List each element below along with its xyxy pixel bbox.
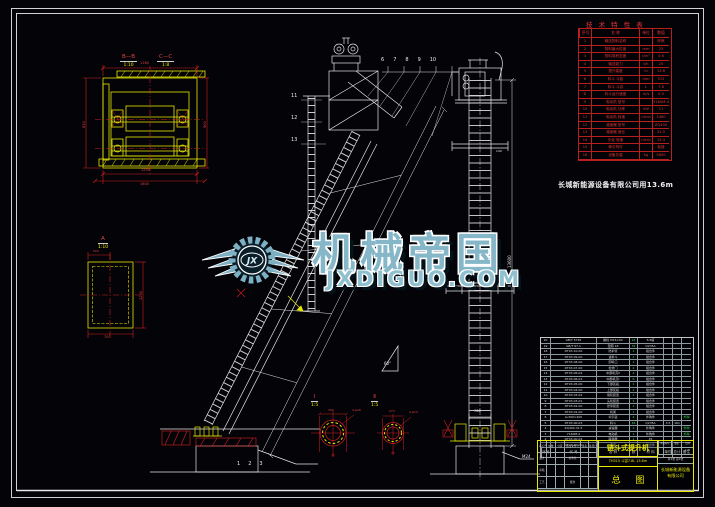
tech-row-name: 料斗 斗容 xyxy=(591,84,639,92)
stage-value xyxy=(671,448,681,455)
tech-row-name: 牵引构件 xyxy=(591,144,639,152)
dim-d2-width: 273 xyxy=(389,410,395,413)
callout-number: 13 xyxy=(291,137,297,143)
tech-row: 5 提升高度 m 13.6 xyxy=(579,68,671,76)
tech-row-name: 输送能力 xyxy=(591,61,639,69)
tech-row-unit: kg xyxy=(639,152,652,160)
tech-row-name: 物料最大粒度 xyxy=(591,46,639,54)
revision-cell: 年月日 xyxy=(589,441,598,453)
tech-row-value: 7.8 xyxy=(652,84,669,92)
revision-cell xyxy=(565,465,581,477)
tech-row-no: 16 xyxy=(579,152,591,160)
tech-row-value: 5800 xyxy=(652,152,669,160)
tech-row-no: 14 xyxy=(579,137,591,145)
callout-number: 1 xyxy=(237,461,240,467)
tech-row-value: 31.5 xyxy=(652,129,669,137)
tech-row-value: 25 xyxy=(652,46,669,54)
title-block: 标记处数分区更改文件号签名年月日设计标准化审核工艺批准 链斗式提升机 TH315… xyxy=(537,440,694,492)
callout-number: 3 xyxy=(259,461,262,467)
title-block-middle: 链斗式提升机 TH315 斗容7.8L 13.6m 总 图 xyxy=(599,441,658,491)
revision-cell xyxy=(556,453,565,465)
dim-d2-holes: 4-φ14 xyxy=(409,411,418,414)
revision-cell: 处数 xyxy=(547,441,556,453)
title-block-right: 阶段标记重量比例 1:25 共1张 第1张 长城新能源设备有限公司 xyxy=(658,441,693,491)
revision-cell xyxy=(581,453,589,465)
revision-cell: 标准化 xyxy=(565,453,581,465)
logo-jx-text: JX xyxy=(245,257,258,267)
tech-row-unit: m/s xyxy=(639,91,652,99)
revision-cell xyxy=(589,465,598,477)
tech-row-no: 11 xyxy=(579,114,591,122)
note-anchor-bolt: M24 xyxy=(522,455,531,459)
tech-row-value: 碎焦 xyxy=(652,38,669,46)
tech-row-value: 25 xyxy=(652,61,669,69)
callout-number: 11 xyxy=(291,93,297,99)
sheet-count: 共1张 第1张 xyxy=(658,455,693,464)
tech-row-value: 512 xyxy=(652,76,669,84)
tech-row-name: 设备总重 xyxy=(591,152,639,160)
tech-header-cell: 单位 xyxy=(639,29,652,38)
dim-head-bottom: 1250 xyxy=(141,169,150,173)
tech-row-name: 输送物料名称 xyxy=(591,38,639,46)
tech-row: 8 料斗运行速度 m/s 0.5 xyxy=(579,91,671,99)
flange-detail-1 xyxy=(311,411,355,457)
company-note: 长城新能源设备有限公司用13.6m xyxy=(558,180,708,190)
tech-row: 4 输送能力 t/h 25 xyxy=(579,61,671,69)
callout-number: 6 xyxy=(381,57,384,63)
tech-spec-table: 序号名 称单位数值 1 输送物料名称 碎焦 2 物料最大粒度 mm 25 xyxy=(578,28,672,161)
view-label-d1: Ⅰ 1:5 xyxy=(311,394,318,408)
tech-row: 12 减速器 型号 ZQ400 xyxy=(579,122,671,130)
tech-row-unit xyxy=(639,129,652,137)
tech-row-value: 0.5 xyxy=(652,91,669,99)
tech-table-rows: 1 输送物料名称 碎焦 2 物料最大粒度 mm 25 3 物料堆积密度 t/m³ xyxy=(579,38,671,160)
callout-number: 7 xyxy=(393,57,396,63)
tech-row: 9 电动机 型号 Y160M-4 xyxy=(579,99,671,107)
revision-cell xyxy=(556,477,565,489)
tech-row-name: 料斗 斗距 xyxy=(591,76,639,84)
tech-row: 3 物料堆积密度 t/m³ 0.6 xyxy=(579,53,671,61)
revision-cell xyxy=(581,477,589,489)
tech-row-no: 1 xyxy=(579,38,591,46)
bom-rows: 20 GB/T 5782 螺栓 M16×60 16 8.8级 19 GB/T 9… xyxy=(541,338,693,448)
tech-row-name: 物料堆积密度 xyxy=(591,53,639,61)
revision-cell xyxy=(547,453,556,465)
watermark: JX 机械帝国 JXDIGUO.COM xyxy=(200,220,522,300)
tech-row-unit: mm xyxy=(639,46,652,54)
dim-a-right: 1200 xyxy=(140,291,144,300)
tech-row-no: 13 xyxy=(579,129,591,137)
view-label-cc: C—C 1:8 xyxy=(157,54,174,68)
winged-gear-logo: JX xyxy=(200,220,306,300)
tech-row-value: 13.6 xyxy=(652,68,669,76)
tech-row-name: 头轮 转速 xyxy=(591,137,639,145)
dim-d1-width: 356 xyxy=(328,409,334,412)
stage-values: 1:25 xyxy=(658,448,693,455)
cad-sheet: B—B 1:10 C—C 1:8 A 1:10 Ⅰ 1:5 Ⅱ 1:5 1160… xyxy=(0,0,715,507)
view-name: Ⅱ xyxy=(371,394,378,402)
view-scale: 1:5 xyxy=(371,402,378,408)
revision-cell: 标记 xyxy=(538,441,547,453)
tech-row-no: 15 xyxy=(579,144,591,152)
tech-row-unit: mm xyxy=(639,76,652,84)
tech-header-cell: 名 称 xyxy=(591,29,639,38)
revision-cell: 工艺 xyxy=(538,477,547,489)
tech-table-header: 序号名 称单位数值 xyxy=(579,29,671,38)
tech-header-cell: 序号 xyxy=(579,29,591,38)
machine-title: 链斗式提升机 xyxy=(599,441,657,457)
tech-row-unit: L xyxy=(639,84,652,92)
dim-column-flange: 140 xyxy=(496,150,502,153)
tech-row: 13 减速器 速比 31.5 xyxy=(579,129,671,137)
dim-a-top: 500 xyxy=(93,250,99,253)
revision-cell: 更改文件号 xyxy=(565,441,581,453)
dim-incline-angle: 60° xyxy=(384,362,391,366)
tech-row-unit xyxy=(639,122,652,130)
tech-row-no: 10 xyxy=(579,106,591,114)
view-name: A xyxy=(98,236,108,244)
tech-row-value: 15.4 xyxy=(652,137,669,145)
view-name: B—B xyxy=(120,54,137,62)
view-scale: 1:5 xyxy=(311,402,318,408)
view-name: C—C xyxy=(157,54,174,62)
tail-foundation-marks xyxy=(162,289,303,446)
tech-row-unit: r/min xyxy=(639,137,652,145)
tech-row-value: 0.6 xyxy=(652,53,669,61)
tech-row: 6 料斗 斗距 mm 512 xyxy=(579,76,671,84)
callout-number: 9 xyxy=(418,57,421,63)
tech-row-no: 5 xyxy=(579,68,591,76)
callouts-left: 111213 xyxy=(291,93,297,143)
tech-header-cell: 数值 xyxy=(652,29,669,38)
tech-row: 1 输送物料名称 碎焦 xyxy=(579,38,671,46)
revision-cell: 分区 xyxy=(556,441,565,453)
tech-row-value: 11 xyxy=(652,106,669,114)
callouts-bottom: 123 xyxy=(237,461,263,467)
view-scale: 1:8 xyxy=(157,62,174,68)
view-name: Ⅰ xyxy=(311,394,318,402)
tech-row-name: 电动机 功率 xyxy=(591,106,639,114)
dim-head-right: 900 xyxy=(204,121,208,128)
tech-row-unit: t/m³ xyxy=(639,53,652,61)
revision-cell: 设计 xyxy=(538,453,547,465)
tech-row-name: 料斗运行速度 xyxy=(591,91,639,99)
a-view-detail xyxy=(80,252,146,338)
drawing-name: 总 图 xyxy=(599,467,657,491)
revision-cell xyxy=(547,465,556,477)
callout-number: 10 xyxy=(430,57,436,63)
tech-row-no: 7 xyxy=(579,84,591,92)
revision-grid: 标记处数分区更改文件号签名年月日设计标准化审核工艺批准 xyxy=(538,441,599,491)
tech-row-unit: r/min xyxy=(639,114,652,122)
dim-head-left: 830 xyxy=(83,121,87,128)
dim-d1-holes: 4-φ18 xyxy=(352,409,361,412)
revision-cell xyxy=(556,465,565,477)
dim-a-bottom: 700 xyxy=(104,336,111,340)
callout-number: 8 xyxy=(405,57,408,63)
tech-row: 16 设备总重 kg 5800 xyxy=(579,152,671,160)
tech-row-unit xyxy=(639,144,652,152)
tech-row-no: 9 xyxy=(579,99,591,107)
tech-row-name: 电动机 转速 xyxy=(591,114,639,122)
view-scale: 1:10 xyxy=(120,62,137,68)
revision-cell: 签名 xyxy=(581,441,589,453)
tech-row-name: 减速器 速比 xyxy=(591,129,639,137)
tech-row: 10 电动机 功率 kW 11 xyxy=(579,106,671,114)
tech-row-unit xyxy=(639,38,652,46)
dim-head-top: 1160 xyxy=(140,62,149,66)
revision-cell: 批准 xyxy=(565,477,581,489)
tech-row-name: 减速器 型号 xyxy=(591,122,639,130)
callout-number: 12 xyxy=(291,115,297,121)
tech-row-no: 4 xyxy=(579,61,591,69)
stage-label: 重量 xyxy=(671,441,681,448)
tech-row: 15 牵引构件 板链 xyxy=(579,144,671,152)
tech-row-unit: t/h xyxy=(639,61,652,69)
tech-row-unit: kW xyxy=(639,106,652,114)
callout-number: 2 xyxy=(248,461,251,467)
tech-row-value: 板链 xyxy=(652,144,669,152)
tech-row: 11 电动机 转速 r/min 1460 xyxy=(579,114,671,122)
revision-cell xyxy=(589,453,598,465)
machine-model: TH315 斗容7.8L 13.6m xyxy=(599,457,657,467)
view-label-bb: B—B 1:10 xyxy=(120,54,137,68)
tech-row-no: 8 xyxy=(579,91,591,99)
callouts-top: 678910 xyxy=(381,57,436,63)
tech-row: 2 物料最大粒度 mm 25 xyxy=(579,46,671,54)
tech-row-unit xyxy=(639,99,652,107)
tech-row-name: 电动机 型号 xyxy=(591,99,639,107)
stage-label: 阶段标记 xyxy=(658,441,671,448)
revision-cell xyxy=(589,477,598,489)
view-label-d2: Ⅱ 1:5 xyxy=(371,394,378,408)
stage-labels: 阶段标记重量比例 xyxy=(658,441,693,448)
dim-column-base: 780 xyxy=(474,410,481,414)
tech-row-value: ZQ400 xyxy=(652,122,669,130)
view-label-a: A 1:10 xyxy=(98,236,108,250)
tech-row: 7 料斗 斗容 L 7.8 xyxy=(579,84,671,92)
revision-cell: 审核 xyxy=(538,465,547,477)
flange-detail-2 xyxy=(377,414,411,455)
stage-label: 比例 xyxy=(681,441,693,448)
watermark-domain: JXDIGUO.COM xyxy=(326,267,522,291)
tech-row-value: Y160M-4 xyxy=(652,99,669,107)
stage-value: 1:25 xyxy=(681,448,693,455)
tech-row: 14 头轮 转速 r/min 15.4 xyxy=(579,137,671,145)
tech-row-name: 提升高度 xyxy=(591,68,639,76)
company-name: 长城新能源设备有限公司 xyxy=(658,464,693,491)
dim-head-bottom2: 1600 xyxy=(140,183,149,187)
stage-value xyxy=(658,448,671,455)
revision-cell xyxy=(581,465,589,477)
tech-row-no: 12 xyxy=(579,122,591,130)
tech-row-value: 1460 xyxy=(652,114,669,122)
revision-cell xyxy=(547,477,556,489)
tech-row-no: 6 xyxy=(579,76,591,84)
tech-row-unit: m xyxy=(639,68,652,76)
tech-row-no: 3 xyxy=(579,53,591,61)
tech-row-no: 2 xyxy=(579,46,591,54)
view-scale: 1:10 xyxy=(98,244,108,250)
